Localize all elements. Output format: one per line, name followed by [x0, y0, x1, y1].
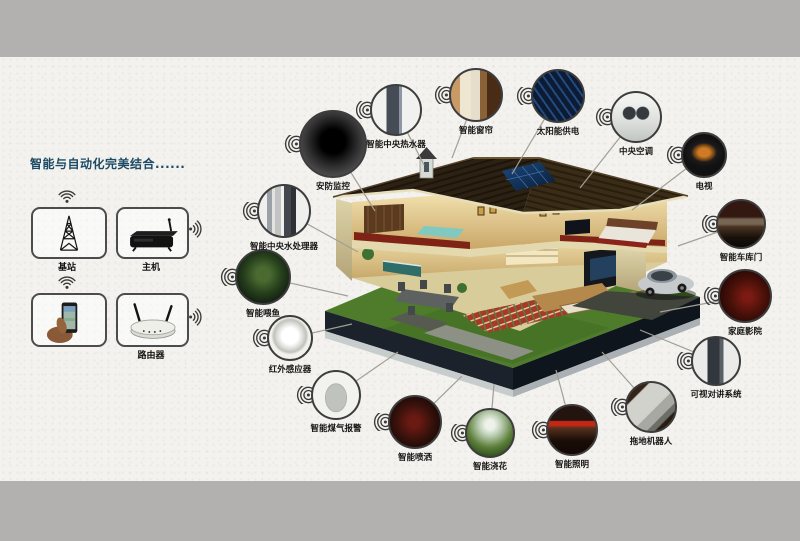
device-label-tv: 电视	[695, 180, 712, 192]
wifi-signal-icon	[250, 329, 268, 347]
device-circle-home-theater	[718, 269, 772, 323]
device-circle-sprinkler	[465, 408, 515, 458]
leader-line	[678, 232, 717, 246]
wifi-signal-icon	[282, 135, 300, 153]
device-circle-garage-door	[716, 199, 766, 249]
left-exterior-wall	[336, 199, 352, 281]
device-label-water-processor: 智能中央水处理器	[250, 240, 318, 252]
host-label: 主机	[142, 260, 160, 273]
wifi-signal-icon	[187, 308, 205, 326]
leader-line	[357, 352, 399, 381]
device-circle-mopping-robot	[625, 381, 677, 433]
right-exterior-wall	[616, 249, 646, 293]
device-circle-solar-power	[531, 69, 585, 123]
wifi-signal-icon	[218, 268, 236, 286]
leader-line	[351, 173, 375, 211]
wifi-signal-icon	[664, 146, 682, 164]
device-label-smart-lighting: 智能照明	[555, 458, 589, 470]
wifi-signal-icon	[674, 352, 692, 370]
wifi-signal-icon	[529, 421, 547, 439]
device-label-video-intercom: 可视对讲系统	[690, 388, 741, 400]
base-station-box	[31, 207, 107, 259]
wifi-signal-icon	[514, 87, 532, 105]
leader-line	[640, 330, 693, 352]
wifi-signal-icon	[593, 108, 611, 126]
leader-line	[632, 169, 686, 210]
wireless-router-icon	[122, 297, 184, 343]
set-top-box-icon	[122, 212, 184, 254]
wifi-signal-icon	[448, 424, 466, 442]
device-label-garage-door: 智能车库门	[720, 251, 763, 263]
device-label-security-camera: 安防监控	[316, 180, 350, 192]
antenna-tower-icon	[50, 212, 88, 254]
device-circle-central-ac	[610, 91, 662, 143]
device-circle-infrared-sensor	[267, 315, 313, 361]
base-station-label: 基站	[58, 260, 76, 273]
wifi-signal-icon	[701, 287, 719, 305]
smartphone-hand-icon	[38, 297, 100, 343]
device-circle-smart-lighting	[546, 404, 598, 456]
device-label-infrared-sensor: 红外感应器	[269, 363, 312, 375]
driveway	[572, 291, 700, 320]
device-label-central-ac: 中央空调	[619, 145, 653, 157]
device-circle-gas-alarm	[311, 370, 361, 420]
leader-line	[602, 352, 634, 388]
top-gray-band	[0, 0, 800, 57]
smart-home-poster: 智能与自动化完美结合......	[0, 0, 800, 541]
device-circle-security-camera	[299, 110, 367, 178]
wifi-signal-icon	[432, 86, 450, 104]
ground-floor	[352, 230, 667, 333]
device-circle-smart-spray	[388, 395, 442, 449]
leader-line	[580, 137, 620, 188]
solar-panel	[502, 162, 556, 191]
leader-line	[556, 370, 565, 405]
wifi-signal-icon	[240, 202, 258, 220]
device-label-home-theater: 家庭影院	[728, 325, 762, 337]
device-label-sprinkler: 智能浇花	[473, 460, 507, 472]
device-circle-water-heater	[370, 84, 422, 136]
leader-line	[290, 283, 348, 296]
host-box	[116, 207, 189, 259]
device-circle-video-intercom	[691, 336, 741, 386]
router-box	[116, 293, 189, 347]
device-label-solar-power: 太阳能供电	[537, 125, 580, 137]
wifi-signal-icon	[371, 413, 389, 431]
floor-slab	[352, 240, 667, 257]
wifi-signal-icon	[608, 398, 626, 416]
roof-cupola	[416, 147, 437, 178]
device-label-water-heater: 智能中央热水器	[366, 138, 426, 150]
device-label-smart-spray: 智能喷洒	[398, 451, 432, 463]
device-circle-smart-curtain	[449, 68, 503, 122]
wifi-signal-icon	[58, 187, 76, 205]
device-circle-water-processor	[257, 184, 311, 238]
upper-floor	[352, 190, 667, 249]
device-circle-fish-feeder	[235, 249, 291, 305]
bottom-gray-band	[0, 481, 800, 541]
poster-title: 智能与自动化完美结合......	[30, 155, 185, 172]
router-label: 路由器	[137, 348, 164, 361]
leader-line	[492, 384, 494, 408]
leader-line	[312, 324, 352, 333]
device-label-smart-curtain: 智能窗帘	[459, 124, 493, 136]
device-label-fish-feeder: 智能喂鱼	[246, 307, 280, 319]
car	[636, 269, 696, 300]
device-circle-tv	[681, 132, 727, 178]
wifi-signal-icon	[294, 386, 312, 404]
wifi-signal-icon	[353, 101, 371, 119]
device-label-mopping-robot: 拖地机器人	[630, 435, 673, 447]
device-label-gas-alarm: 智能煤气报警	[310, 422, 361, 434]
leader-line	[434, 376, 462, 403]
wifi-signal-icon	[58, 273, 76, 291]
phone-box	[31, 293, 107, 347]
lawn-platform	[325, 232, 700, 397]
wifi-signal-icon	[187, 220, 205, 238]
wifi-signal-icon	[699, 215, 717, 233]
